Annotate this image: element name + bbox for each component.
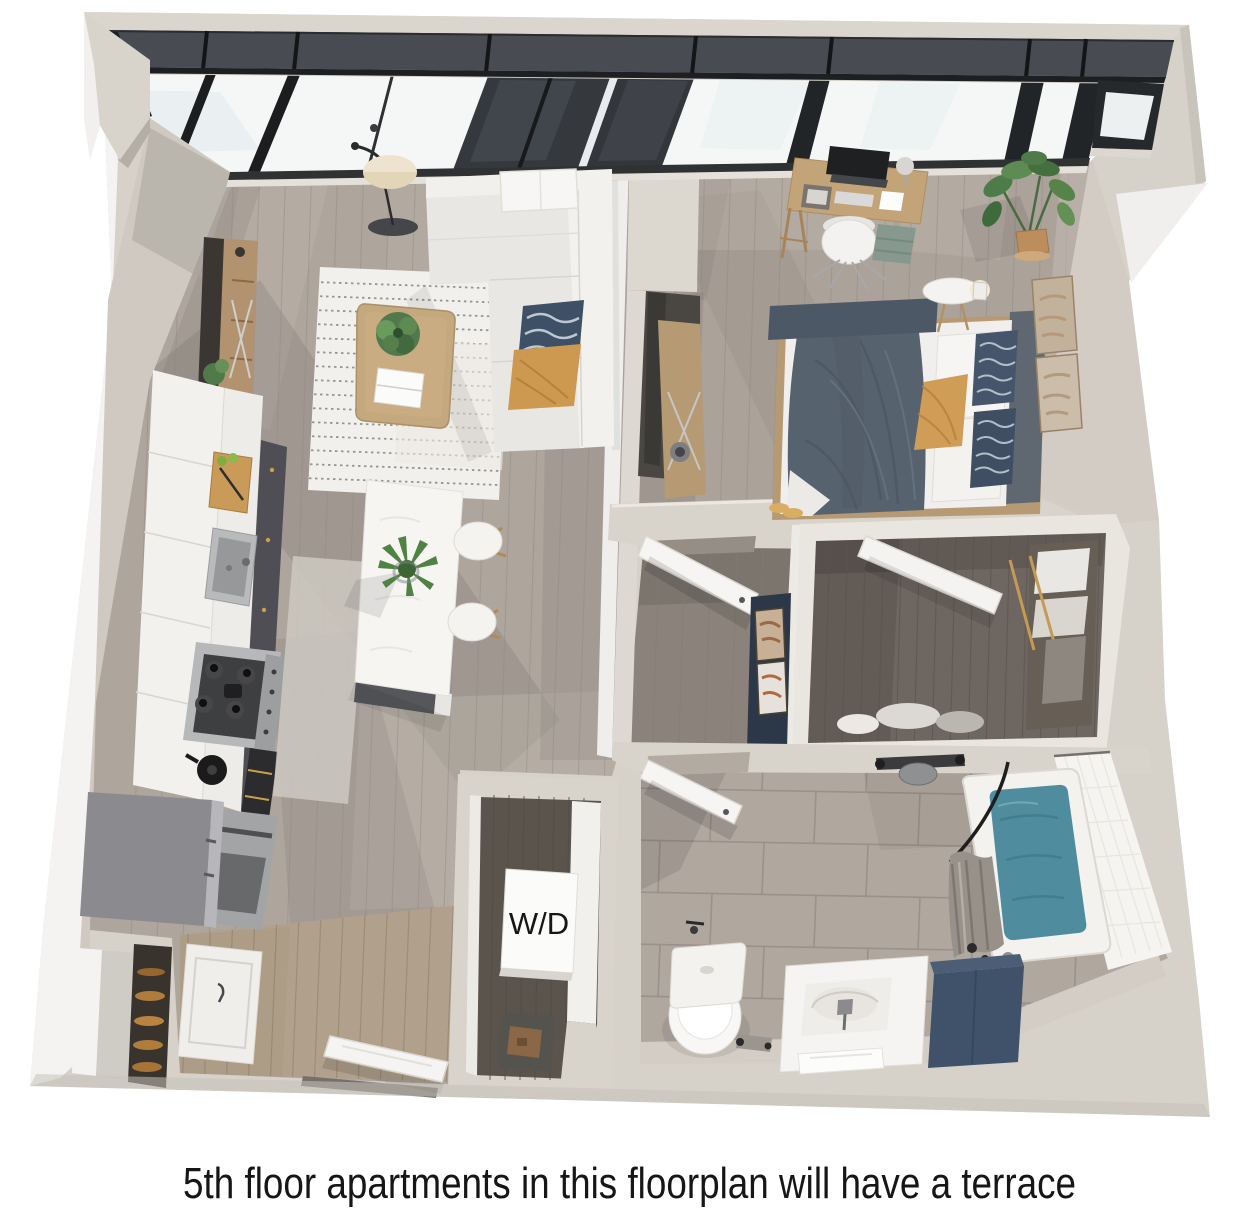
svg-text:5th floor apartments in this f: 5th floor apartments in this floorplan w…	[183, 1159, 1076, 1208]
svg-text:W/D: W/D	[509, 906, 569, 941]
